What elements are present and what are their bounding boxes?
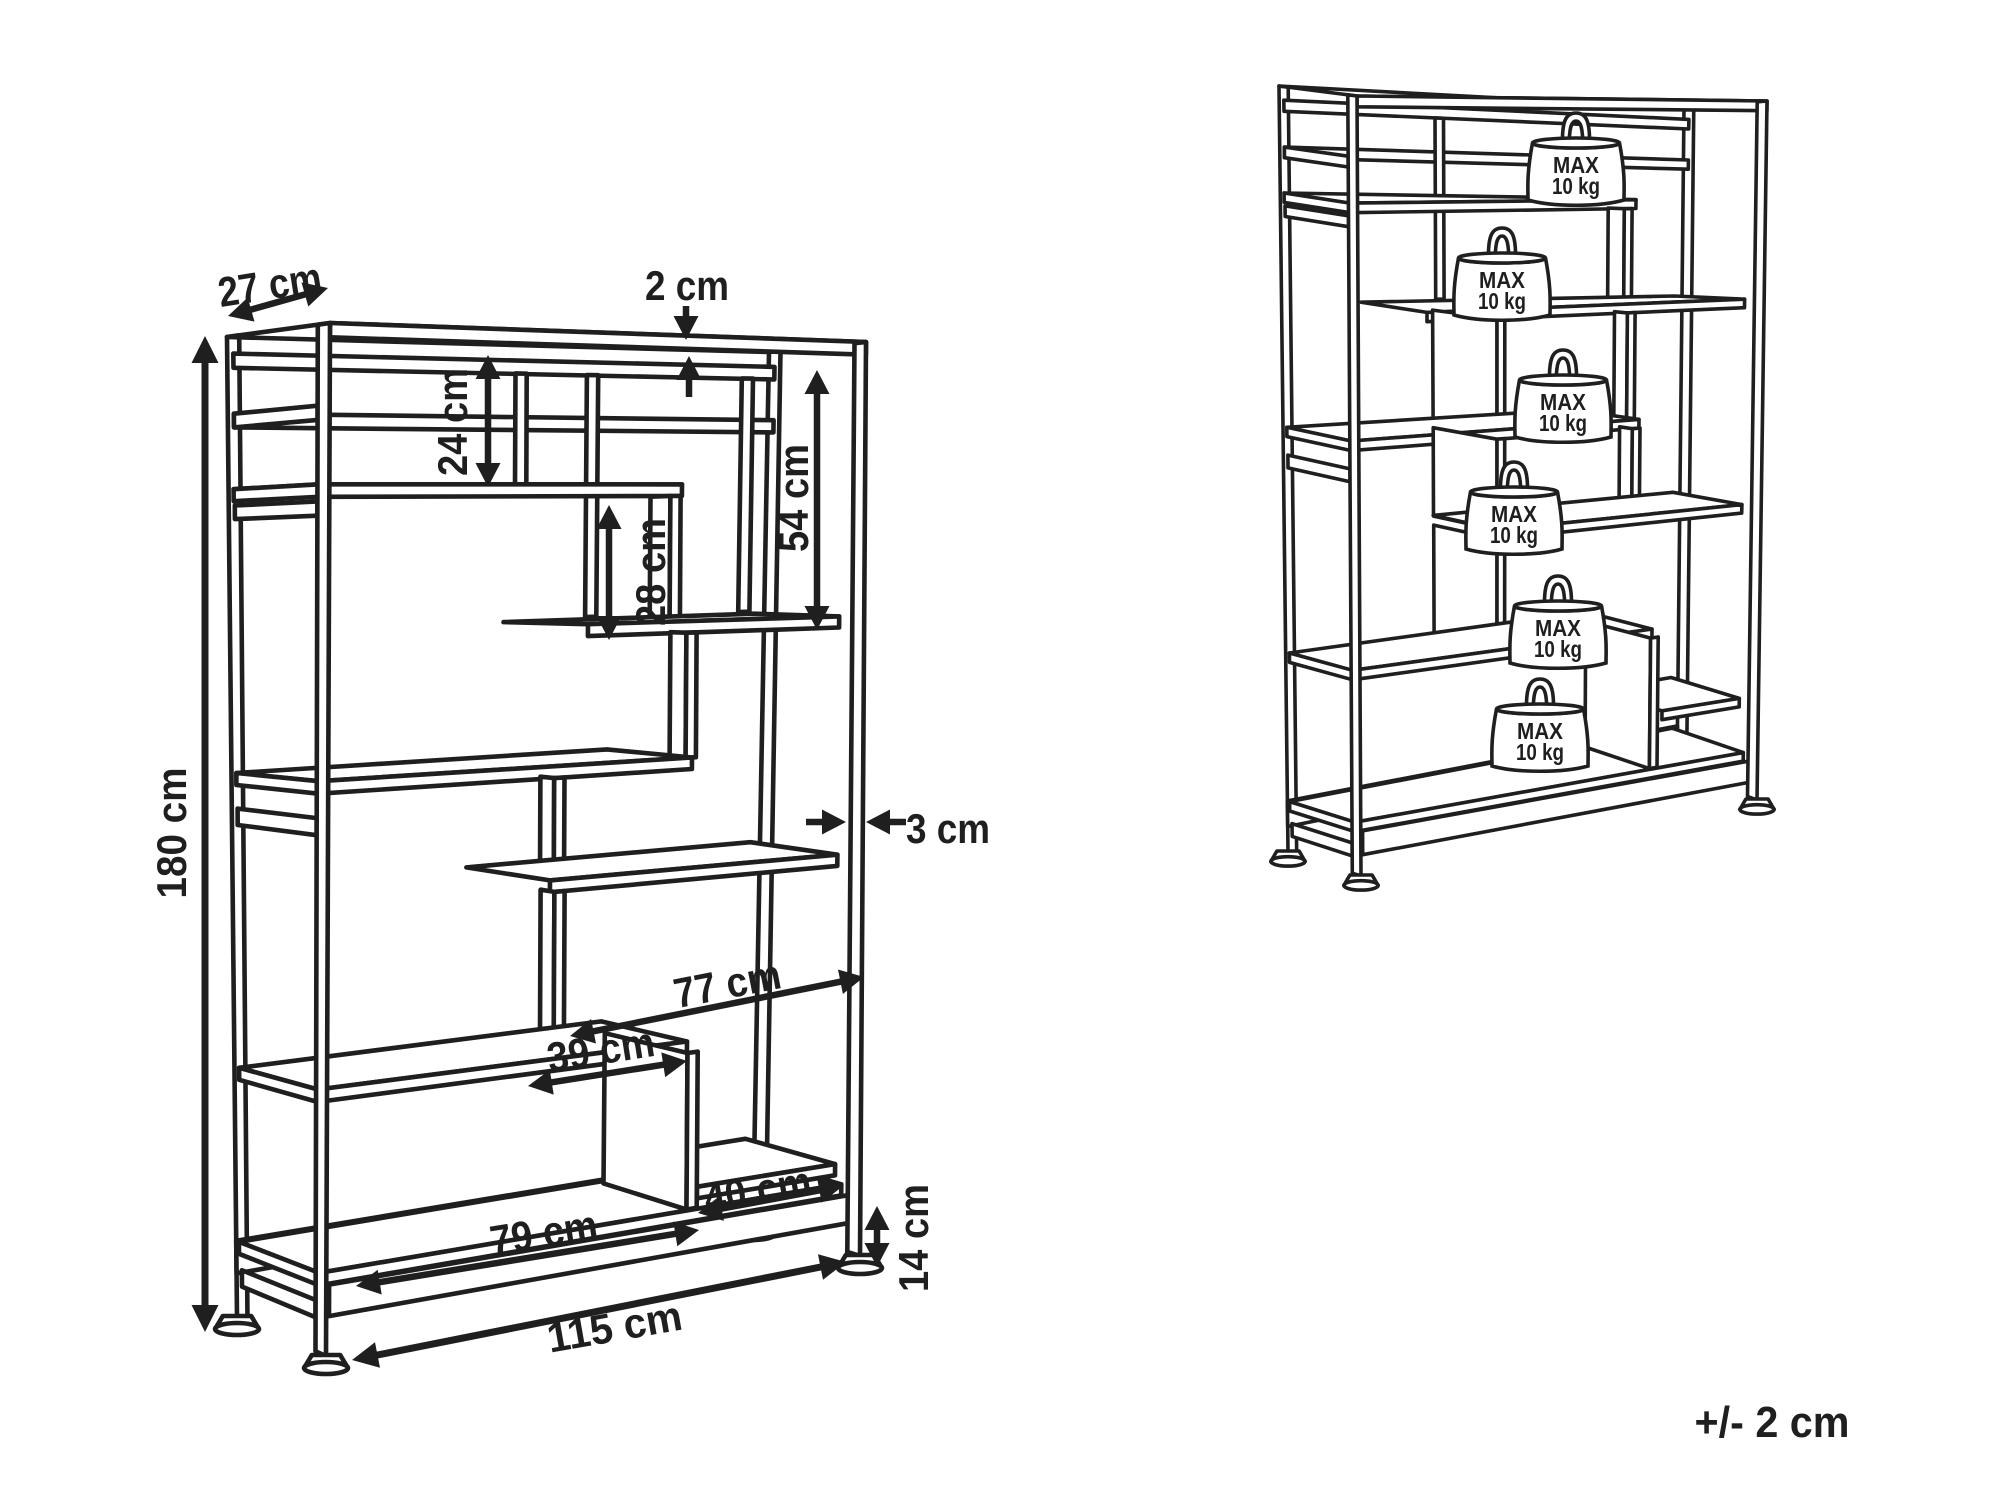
- svg-text:10 kg: 10 kg: [1478, 288, 1526, 314]
- svg-text:10 kg: 10 kg: [1552, 173, 1600, 199]
- svg-text:+/- 2 cm: +/- 2 cm: [1695, 1398, 1850, 1447]
- svg-text:10 kg: 10 kg: [1534, 636, 1582, 662]
- svg-text:24 cm: 24 cm: [429, 368, 476, 476]
- svg-text:3 cm: 3 cm: [906, 805, 990, 852]
- svg-text:28 cm: 28 cm: [627, 518, 674, 626]
- svg-text:54 cm: 54 cm: [770, 444, 817, 552]
- svg-text:2 cm: 2 cm: [645, 262, 729, 309]
- svg-text:180 cm: 180 cm: [148, 768, 195, 899]
- svg-text:10 kg: 10 kg: [1539, 410, 1587, 436]
- svg-text:10 kg: 10 kg: [1516, 739, 1564, 765]
- svg-text:10 kg: 10 kg: [1490, 522, 1538, 548]
- svg-text:14 cm: 14 cm: [890, 1184, 937, 1292]
